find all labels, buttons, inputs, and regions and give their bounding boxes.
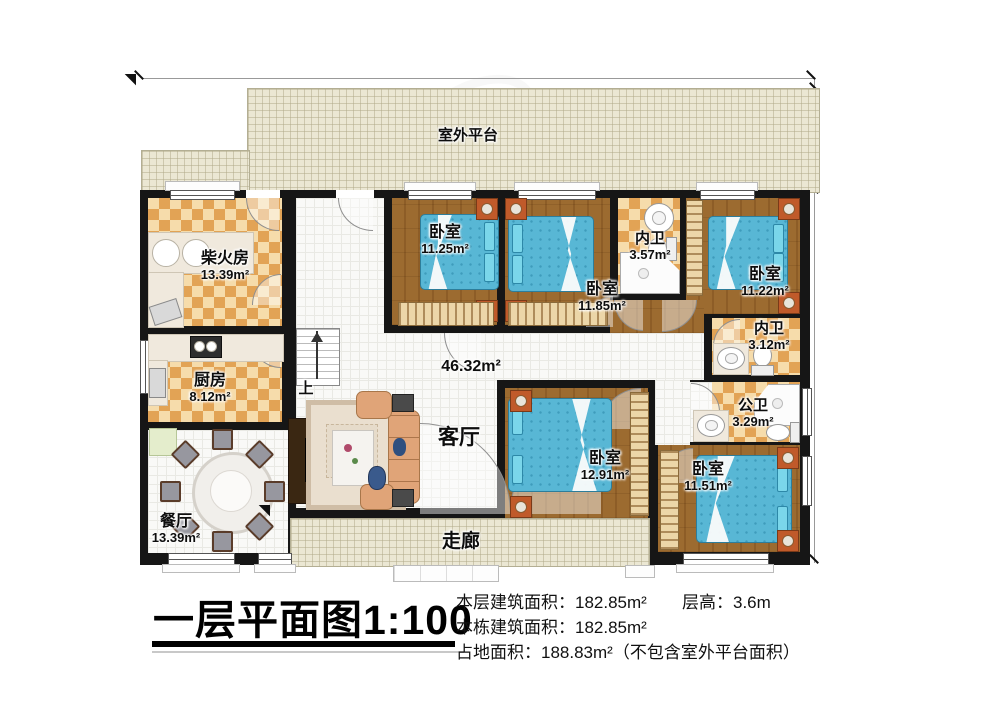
plan-title: 一层平面图1:100	[153, 586, 473, 646]
door-opening	[336, 190, 374, 198]
side-table	[392, 489, 414, 507]
wardrobe	[398, 302, 494, 326]
window-sill	[162, 564, 240, 573]
nightstand	[505, 198, 527, 220]
bed-pillow	[512, 255, 523, 284]
entry-step	[393, 565, 499, 582]
room-name: 柴火房	[201, 250, 249, 267]
platform-label: 室外平台	[425, 128, 511, 145]
bed-pillow	[512, 224, 523, 253]
person-figure	[368, 466, 386, 490]
room-label-bath-n: 内卫 3.57m²	[621, 231, 679, 262]
room-name: 卧室	[692, 461, 724, 478]
room-label-bedroom-s: 卧室 12.91m²	[572, 450, 638, 482]
toilet-tank	[790, 422, 800, 443]
side-table	[392, 394, 414, 412]
window	[518, 190, 596, 200]
nightstand	[778, 198, 800, 220]
stat-land-area: 占地面积：188.83m²（不包含室外平台面积）	[456, 638, 800, 663]
corridor-label: 走廊	[428, 532, 494, 553]
room-area: 8.12m²	[168, 390, 252, 404]
room-label-bath-public: 公卫 3.29m²	[722, 398, 784, 429]
burner-icon	[206, 341, 217, 352]
room-name: 内卫	[635, 230, 665, 247]
dining-table-center	[210, 470, 252, 512]
room-label-kitchen: 厨房 8.12m²	[168, 372, 252, 404]
window	[700, 190, 755, 200]
room-area: 13.39m²	[139, 531, 213, 545]
table-flowers-icon	[344, 444, 352, 452]
chair-icon	[212, 531, 233, 552]
room-name: 卧室	[589, 450, 621, 467]
sink-icon	[697, 414, 725, 437]
title-underline-thin	[152, 651, 464, 653]
wardrobe	[686, 200, 703, 296]
room-label-bedroom-ne: 卧室 11.22m²	[731, 266, 799, 298]
room-area: 3.29m²	[722, 415, 784, 429]
nightstand	[777, 530, 799, 552]
stat-floor-area: 本层建筑面积：182.85m²	[456, 588, 647, 613]
bed-pillow	[773, 224, 784, 253]
room-label-bedroom-se: 卧室 11.51m²	[675, 461, 741, 493]
armchair	[356, 391, 392, 419]
table-flowers-icon	[352, 458, 358, 464]
person-figure	[393, 438, 406, 456]
stairs-up-arrow-icon	[311, 326, 323, 342]
room-label-bedroom-nw: 卧室 11.25m²	[400, 224, 490, 256]
outdoor-platform	[247, 88, 820, 193]
room-label-firewood: 柴火房 13.39m²	[180, 250, 270, 282]
room-name: 卧室	[429, 224, 461, 241]
room-area: 11.22m²	[731, 284, 799, 298]
sink-icon	[149, 368, 166, 398]
bed-pillow	[484, 253, 495, 282]
nightstand	[510, 496, 532, 518]
bed-pillow	[512, 455, 523, 484]
room-label-bath-e: 内卫 3.12m²	[738, 321, 800, 352]
nightstand	[777, 447, 799, 469]
room-name: 餐厅	[160, 513, 192, 530]
walkway-floor	[655, 380, 690, 445]
chair-icon	[212, 429, 233, 450]
window-sill	[676, 564, 774, 573]
room-area: 3.12m²	[738, 338, 800, 352]
room-area: 12.91m²	[572, 468, 638, 482]
room-name: 卧室	[749, 266, 781, 283]
stove-pot-icon	[152, 239, 180, 267]
dimension-line-top	[142, 78, 814, 79]
room-area: 11.25m²	[400, 242, 490, 256]
window	[802, 456, 812, 506]
room-name: 厨房	[194, 372, 226, 389]
window-sill	[254, 564, 296, 573]
room-name: 内卫	[754, 320, 784, 337]
stairs-up-label: 上	[294, 381, 318, 398]
room-area: 3.57m²	[621, 248, 679, 262]
window	[408, 190, 472, 200]
room-name: 公卫	[738, 397, 768, 414]
chair-icon	[160, 481, 181, 502]
entry-step	[625, 565, 655, 578]
nightstand	[510, 390, 532, 412]
window	[170, 190, 235, 200]
floor-plan-page: 18200 2880 10000 室外平台	[0, 0, 1000, 706]
room-area: 11.51m²	[675, 479, 741, 493]
living-room-label: 客厅	[426, 426, 492, 449]
entry-arrow-icon	[125, 63, 148, 86]
room-name: 卧室	[586, 281, 618, 298]
room-label-bedroom-n: 卧室 11.85m²	[557, 281, 647, 313]
stat-building-area: 本栋建筑面积：182.85m²	[456, 613, 647, 638]
sink-icon	[644, 203, 674, 233]
room-area: 11.85m²	[557, 299, 647, 313]
toilet-tank	[751, 365, 774, 376]
title-underline	[152, 641, 455, 647]
burner-icon	[194, 341, 205, 352]
shower-drain-icon	[638, 268, 649, 279]
room-label-dining: 餐厅 13.39m²	[139, 513, 213, 545]
room-area: 13.39m²	[180, 268, 270, 282]
nightstand	[476, 198, 498, 220]
window	[802, 388, 812, 436]
stat-story-height: 层高：3.6m	[682, 588, 771, 613]
living-area-label: 46.32m²	[436, 358, 506, 376]
door-opening	[246, 190, 280, 198]
